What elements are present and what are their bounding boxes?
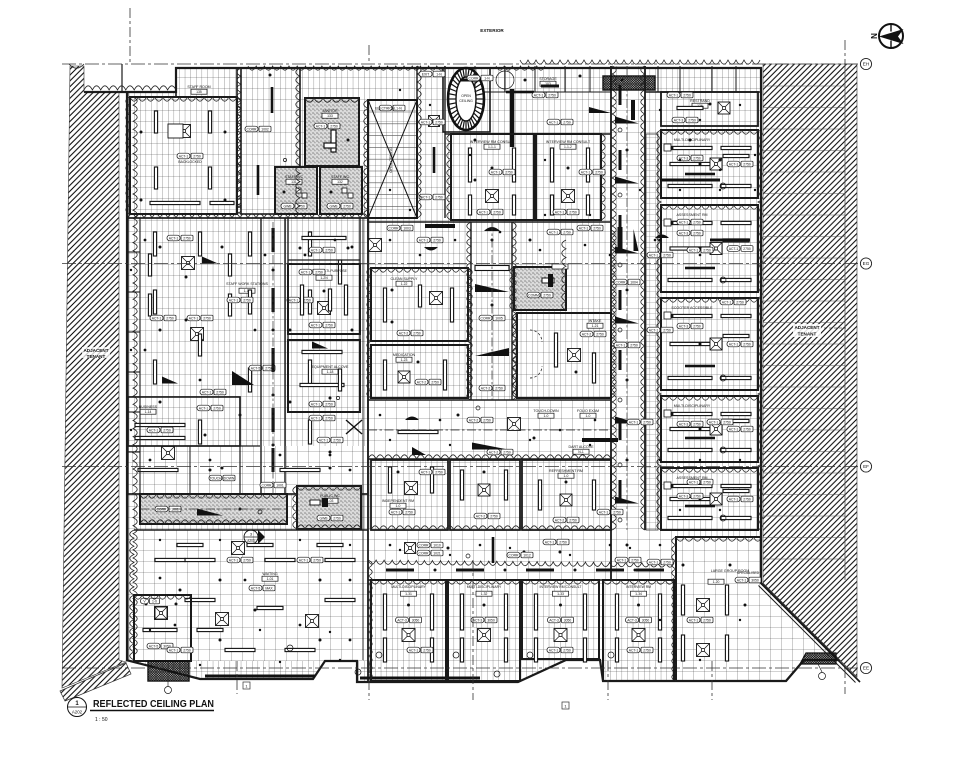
svg-text:MULTI-DISCIPLINARY: MULTI-DISCIPLINARY — [467, 585, 502, 589]
svg-text:1005: 1005 — [495, 316, 503, 320]
svg-text:2750: 2750 — [333, 438, 341, 442]
svg-text:CEILING: CEILING — [459, 99, 473, 103]
svg-text:3050: 3050 — [751, 578, 759, 582]
svg-text:1-N: 1-N — [436, 72, 442, 76]
svg-text:MULTI-DISCIPLINARY: MULTI-DISCIPLINARY — [674, 404, 711, 408]
svg-text:1004: 1004 — [630, 280, 638, 284]
svg-text:ACT-1: ACT-1 — [229, 298, 239, 302]
svg-text:ACT-1: ACT-1 — [549, 120, 559, 124]
svg-text:ACT-1: ACT-1 — [202, 390, 212, 394]
svg-text:3050: 3050 — [564, 618, 572, 622]
svg-text:2750: 2750 — [613, 510, 621, 514]
svg-text:135: 135 — [196, 90, 202, 94]
svg-text:INTERVIEW RM: INTERVIEW RM — [626, 585, 651, 589]
svg-text:EE: EE — [863, 666, 869, 671]
svg-text:132: 132 — [337, 180, 343, 184]
svg-text:1012: 1012 — [523, 553, 531, 557]
svg-text:ACT-1: ACT-1 — [301, 270, 311, 274]
svg-text:2750: 2750 — [569, 210, 577, 214]
svg-text:1-20: 1-20 — [713, 580, 720, 584]
svg-text:OPEN CEILING: OPEN CEILING — [389, 147, 393, 173]
svg-text:ACT-1: ACT-1 — [579, 226, 589, 230]
svg-text:2750: 2750 — [435, 120, 443, 124]
svg-text:2750: 2750 — [203, 316, 211, 320]
svg-text:2750: 2750 — [693, 156, 701, 160]
svg-text:2750: 2750 — [325, 323, 333, 327]
svg-text:1-34: 1-34 — [635, 592, 642, 596]
svg-text:DOWN: DOWN — [224, 476, 235, 480]
svg-text:2750: 2750 — [325, 402, 333, 406]
svg-text:1-0: 1-0 — [586, 414, 591, 418]
svg-text:STAFF WC: STAFF WC — [331, 175, 350, 179]
svg-text:EXIT: EXIT — [422, 72, 430, 76]
svg-text:2750: 2750 — [183, 648, 191, 652]
svg-text:1-22: 1-22 — [401, 282, 408, 286]
svg-text:CORR: CORR — [419, 543, 430, 547]
svg-text:BUSINESS: BUSINESS — [139, 405, 158, 409]
svg-text:2750: 2750 — [483, 418, 491, 422]
svg-text:ACT-1: ACT-1 — [169, 648, 179, 652]
svg-text:2750: 2750 — [703, 248, 711, 252]
svg-text:MULTI-DISCIPLINARY: MULTI-DISCIPLINARY — [674, 138, 711, 142]
svg-text:2750: 2750 — [693, 220, 701, 224]
svg-text:RESTRAND: RESTRAND — [690, 99, 710, 103]
svg-text:2750: 2750 — [596, 332, 604, 336]
svg-text:2750: 2750 — [505, 170, 513, 174]
svg-text:ACT-1: ACT-1 — [316, 124, 326, 128]
svg-text:1-0: 1-0 — [544, 414, 549, 418]
svg-text:ACT-1: ACT-1 — [189, 316, 199, 320]
svg-text:ACT-1: ACT-1 — [729, 497, 739, 501]
svg-text:1-1-1: 1-1-1 — [488, 145, 496, 149]
svg-text:1001: 1001 — [276, 483, 284, 487]
svg-text:A203: A203 — [247, 539, 255, 543]
svg-text:2750: 2750 — [563, 120, 571, 124]
svg-text:SPECIALISED: SPECIALISED — [737, 571, 760, 575]
svg-text:ELECTRICAL: ELECTRICAL — [375, 106, 396, 110]
svg-text:ACT-3: ACT-3 — [397, 618, 407, 622]
svg-text:1 : 50: 1 : 50 — [95, 717, 108, 723]
svg-text:ACT-2: ACT-2 — [476, 514, 486, 518]
svg-text:ACT-1: ACT-1 — [737, 578, 747, 582]
svg-text:2750: 2750 — [683, 93, 691, 97]
svg-text:JANITOR: JANITOR — [322, 109, 338, 113]
svg-text:ADJACENT: ADJACENT — [83, 348, 108, 353]
svg-text:2750: 2750 — [216, 390, 224, 394]
svg-text:ACT-1: ACT-1 — [679, 220, 689, 224]
svg-text:2750: 2750 — [543, 293, 551, 297]
svg-text:GWB: GWB — [319, 516, 328, 520]
svg-text:A202: A202 — [72, 710, 83, 715]
svg-text:OPEN: OPEN — [461, 94, 471, 98]
svg-text:3050: 3050 — [642, 618, 650, 622]
svg-text:2750: 2750 — [343, 204, 351, 208]
svg-text:2750: 2750 — [166, 316, 174, 320]
svg-text:ACT-3: ACT-3 — [679, 324, 689, 328]
svg-text:ACT-5: ACT-5 — [251, 586, 261, 590]
svg-text:2750: 2750 — [736, 300, 744, 304]
svg-text:WAITING: WAITING — [262, 572, 277, 576]
svg-text:2750: 2750 — [743, 497, 751, 501]
svg-text:ACT-2: ACT-2 — [582, 332, 592, 336]
svg-text:EF: EF — [863, 464, 869, 469]
svg-text:1-14: 1-14 — [145, 410, 152, 414]
svg-text:2750: 2750 — [663, 328, 671, 332]
svg-text:GWB: GWB — [329, 204, 338, 208]
svg-text:2750: 2750 — [743, 427, 751, 431]
svg-text:ACT-1: ACT-1 — [722, 300, 732, 304]
svg-text:ACT-2: ACT-2 — [555, 518, 565, 522]
svg-text:ACT-3: ACT-3 — [674, 118, 684, 122]
svg-text:ACT-2: ACT-2 — [489, 450, 499, 454]
svg-text:ACT-3: ACT-3 — [473, 618, 483, 622]
svg-text:STAFF WC: STAFF WC — [285, 175, 304, 179]
svg-text:ADJACENT: ADJACENT — [794, 325, 819, 330]
svg-text:2750: 2750 — [693, 231, 701, 235]
svg-text:2750: 2750 — [243, 558, 251, 562]
svg-text:ACT-3: ACT-3 — [679, 231, 689, 235]
svg-text:2750: 2750 — [435, 195, 443, 199]
svg-text:ACT-1: ACT-1 — [289, 298, 299, 302]
svg-text:ASSESSMENT RM: ASSESSMENT RM — [676, 213, 707, 217]
svg-text:1003: 1003 — [403, 226, 411, 230]
svg-text:ACT-1: ACT-1 — [649, 560, 659, 564]
svg-text:2750: 2750 — [330, 124, 338, 128]
svg-text:2750: 2750 — [663, 560, 671, 564]
svg-text:2750: 2750 — [433, 238, 441, 242]
svg-text:2750: 2750 — [413, 331, 421, 335]
svg-text:ACT-1: ACT-1 — [549, 230, 559, 234]
svg-text:1002: 1002 — [261, 127, 269, 131]
svg-text:ACT-1: ACT-1 — [629, 648, 639, 652]
svg-text:2750: 2750 — [688, 118, 696, 122]
svg-text:ACT-1: ACT-1 — [534, 93, 544, 97]
svg-text:INDEPENDENT RM: INDEPENDENT RM — [382, 499, 414, 503]
svg-text:ACT-2: ACT-2 — [469, 418, 479, 422]
svg-text:ACT-1: ACT-1 — [409, 648, 419, 652]
svg-text:ACT-1: ACT-1 — [689, 248, 699, 252]
svg-text:2750: 2750 — [548, 93, 556, 97]
svg-text:1-33: 1-33 — [557, 592, 564, 596]
svg-text:2750: 2750 — [631, 558, 639, 562]
svg-text:1010: 1010 — [433, 543, 441, 547]
svg-text:2750: 2750 — [183, 236, 191, 240]
svg-text:1-0: 1-0 — [564, 474, 569, 478]
svg-text:ACT-1: ACT-1 — [545, 540, 555, 544]
svg-text:2750: 2750 — [723, 420, 731, 424]
svg-text:INTAKE: INTAKE — [589, 319, 602, 323]
svg-text:ACT-1: ACT-1 — [617, 558, 627, 562]
svg-text:CORR: CORR — [469, 76, 480, 80]
svg-text:ACT-2: ACT-2 — [481, 386, 491, 390]
svg-text:2750: 2750 — [743, 342, 751, 346]
svg-text:REFLECTED CEILING PLAN: REFLECTED CEILING PLAN — [93, 699, 214, 710]
svg-text:2750: 2750 — [193, 154, 201, 158]
svg-text:ACT-3: ACT-3 — [679, 494, 689, 498]
svg-text:2750: 2750 — [663, 253, 671, 257]
svg-text:ACT-2: ACT-2 — [399, 331, 409, 335]
svg-text:ACT-1: ACT-1 — [169, 236, 179, 240]
svg-text:BACKLOCKED: BACKLOCKED — [178, 160, 202, 164]
svg-text:1-01: 1-01 — [267, 577, 274, 581]
svg-text:SCOOTER ACCESSIBLE: SCOOTER ACCESSIBLE — [671, 306, 713, 310]
svg-text:ACT-1: ACT-1 — [549, 648, 559, 652]
svg-text:2750: 2750 — [569, 518, 577, 522]
svg-text:2750: 2750 — [333, 516, 341, 520]
svg-text:ACT-1: ACT-1 — [555, 210, 565, 214]
svg-text:ACT-1: ACT-1 — [419, 238, 429, 242]
svg-text:ACT-1: ACT-1 — [689, 618, 699, 622]
svg-text:ACT-1: ACT-1 — [179, 154, 189, 158]
svg-text:TOUCH-DOWN: TOUCH-DOWN — [533, 409, 559, 413]
svg-text:1001: 1001 — [171, 507, 179, 511]
svg-text:2750: 2750 — [163, 428, 171, 432]
svg-text:ACT-1: ACT-1 — [391, 510, 401, 514]
svg-text:1-23: 1-23 — [401, 358, 408, 362]
svg-text:STAFF WORK STATIONS: STAFF WORK STATIONS — [226, 282, 268, 286]
svg-text:2750: 2750 — [243, 298, 251, 302]
svg-text:ACT-1: ACT-1 — [311, 402, 321, 406]
svg-text:INTERVIEW RM CONSULT: INTERVIEW RM CONSULT — [546, 140, 591, 144]
svg-text:2750: 2750 — [423, 648, 431, 652]
svg-text:ACT-1: ACT-1 — [649, 253, 659, 257]
svg-text:131: 131 — [291, 180, 297, 184]
svg-text:ACT-1: ACT-1 — [421, 470, 431, 474]
svg-text:2750: 2750 — [559, 540, 567, 544]
svg-text:133: 133 — [327, 114, 333, 118]
svg-text:3050: 3050 — [412, 618, 420, 622]
svg-text:2750: 2750 — [563, 648, 571, 652]
svg-text:ACT-1: ACT-1 — [299, 558, 309, 562]
svg-text:CORR: CORR — [509, 553, 520, 557]
svg-text:2750: 2750 — [303, 298, 311, 302]
svg-text:2750: 2750 — [405, 510, 413, 514]
svg-text:ACT-1: ACT-1 — [729, 427, 739, 431]
svg-text:ACT-1: ACT-1 — [689, 480, 699, 484]
svg-text:1021: 1021 — [433, 551, 441, 555]
svg-text:CORR: CORR — [389, 226, 400, 230]
svg-text:ACT-1: ACT-1 — [491, 170, 501, 174]
svg-text:ACT-1: ACT-1 — [581, 170, 591, 174]
svg-text:ACT-1: ACT-1 — [421, 120, 431, 124]
svg-text:2750: 2750 — [325, 248, 333, 252]
svg-text:ACT-1: ACT-1 — [729, 342, 739, 346]
svg-text:ACT-1: ACT-1 — [629, 420, 639, 424]
svg-text:2750: 2750 — [563, 230, 571, 234]
svg-text:N-1: N-1 — [578, 450, 584, 454]
svg-text:ACT-1: ACT-1 — [319, 438, 329, 442]
svg-text:CORR: CORR — [247, 127, 258, 131]
svg-text:REFRESHMENT RM: REFRESHMENT RM — [549, 469, 583, 473]
svg-text:3050: 3050 — [487, 618, 495, 622]
svg-text:2750: 2750 — [693, 422, 701, 426]
svg-text:2750: 2750 — [503, 450, 511, 454]
svg-text:PUBLIC WC: PUBLIC WC — [320, 494, 340, 498]
svg-text:ACT-3: ACT-3 — [627, 618, 637, 622]
svg-text:CORR: CORR — [157, 507, 168, 511]
svg-text:1-0: 1-0 — [152, 599, 157, 603]
svg-text:CORR: CORR — [481, 316, 492, 320]
svg-text:2750: 2750 — [490, 514, 498, 518]
svg-text:TOUCH: TOUCH — [210, 476, 223, 480]
svg-text:CLEAN SUPPLY: CLEAN SUPPLY — [391, 277, 418, 281]
svg-text:ACT-1: ACT-1 — [311, 416, 321, 420]
svg-text:INTERVIEW RM CONSULT: INTERVIEW RM CONSULT — [540, 585, 582, 589]
svg-text:2750: 2750 — [643, 648, 651, 652]
svg-text:2750: 2750 — [743, 162, 751, 166]
svg-text:2750: 2750 — [431, 380, 439, 384]
svg-text:1-32: 1-32 — [481, 592, 488, 596]
svg-text:ACT-1: ACT-1 — [229, 558, 239, 562]
svg-text:ACT-1: ACT-1 — [479, 210, 489, 214]
svg-text:1-1-2: 1-1-2 — [564, 145, 572, 149]
svg-text:TENANT: TENANT — [798, 332, 817, 337]
svg-text:FOLIO EXAM: FOLIO EXAM — [577, 409, 599, 413]
svg-text:ACT-1: ACT-1 — [152, 316, 162, 320]
svg-text:ACT-1: ACT-1 — [311, 248, 321, 252]
svg-text:2750: 2750 — [325, 416, 333, 420]
svg-text:2750: 2750 — [593, 226, 601, 230]
svg-text:ACT-1: ACT-1 — [729, 162, 739, 166]
svg-text:INTERVIEW RM CONSULT: INTERVIEW RM CONSULT — [470, 140, 515, 144]
svg-text:ACT-3: ACT-3 — [679, 422, 689, 426]
svg-text:CORR: CORR — [262, 483, 273, 487]
svg-text:EG: EG — [863, 261, 870, 266]
svg-text:TENANT: TENANT — [87, 354, 106, 359]
svg-text:STAFF ROOM: STAFF ROOM — [187, 85, 210, 89]
svg-text:2750: 2750 — [435, 470, 443, 474]
svg-text:2750: 2750 — [630, 343, 638, 347]
svg-text:ACT-5: ACT-5 — [251, 366, 261, 370]
svg-text:MULTI-DISCIPLINARY: MULTI-DISCIPLINARY — [391, 585, 426, 589]
svg-text:ACT-1: ACT-1 — [199, 406, 209, 410]
svg-text:2750: 2750 — [643, 420, 651, 424]
svg-text:1-2N: 1-2N — [320, 276, 328, 280]
svg-text:2750: 2750 — [315, 270, 323, 274]
svg-text:2750: 2750 — [495, 386, 503, 390]
svg-text:ACT-1: ACT-1 — [149, 428, 159, 432]
svg-text:ACT-1: ACT-1 — [649, 328, 659, 332]
svg-text:2750: 2750 — [493, 210, 501, 214]
svg-text:EH: EH — [863, 62, 869, 67]
svg-text:CORR: CORR — [616, 280, 627, 284]
svg-text:1-31: 1-31 — [405, 592, 412, 596]
svg-text:ACT-2: ACT-2 — [417, 380, 427, 384]
svg-text:2750: 2750 — [743, 247, 751, 251]
svg-text:ACT-1: ACT-1 — [421, 195, 431, 199]
svg-text:ACT-1: ACT-1 — [599, 510, 609, 514]
svg-text:EQUIPMENT ALCOVE: EQUIPMENT ALCOVE — [312, 365, 349, 369]
svg-text:ACT-1: ACT-1 — [709, 420, 719, 424]
svg-text:2750: 2750 — [693, 494, 701, 498]
svg-text:2750: 2750 — [595, 170, 603, 174]
svg-text:1-18: 1-18 — [327, 370, 334, 374]
svg-text:ACT-1: ACT-1 — [311, 323, 321, 327]
svg-text:1-N: 1-N — [484, 76, 490, 80]
svg-text:2750: 2750 — [313, 558, 321, 562]
svg-text:ACT-1: ACT-1 — [669, 93, 679, 97]
svg-text:2750: 2750 — [703, 618, 711, 622]
svg-text:1-21: 1-21 — [592, 324, 599, 328]
svg-text:N: N — [870, 33, 879, 39]
svg-text:1-0: 1-0 — [396, 504, 401, 508]
svg-text:1-N: 1-N — [396, 106, 402, 110]
svg-text:ACT-5: ACT-5 — [149, 644, 159, 648]
svg-text:STORAGE: STORAGE — [539, 77, 557, 81]
svg-text:GWB: GWB — [283, 204, 292, 208]
svg-text:MAX: MAX — [265, 586, 273, 590]
svg-text:MEDICATION: MEDICATION — [393, 353, 416, 357]
svg-text:2750: 2750 — [213, 406, 221, 410]
svg-text:ACT-1: ACT-1 — [616, 343, 626, 347]
svg-text:2750: 2750 — [693, 324, 701, 328]
svg-text:2750: 2750 — [703, 480, 711, 484]
svg-text:ACT-3: ACT-3 — [549, 618, 559, 622]
svg-text:COMM: COMM — [528, 293, 539, 297]
svg-text:EXTERIOR: EXTERIOR — [480, 28, 504, 33]
svg-text:ACT-1: ACT-1 — [729, 247, 739, 251]
svg-text:CORR: CORR — [419, 551, 430, 555]
